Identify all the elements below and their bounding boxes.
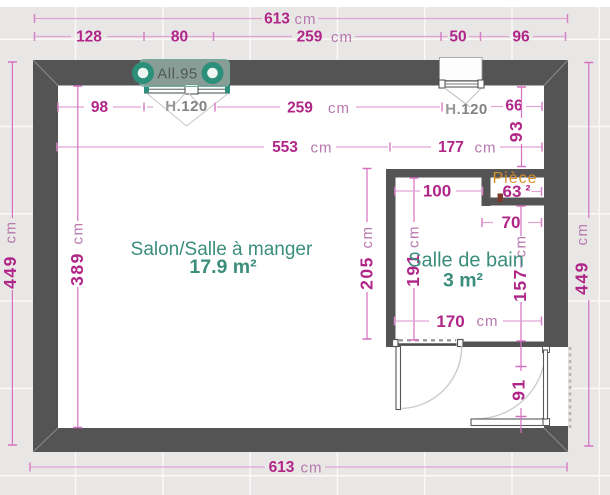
svg-text:cm: cm bbox=[69, 222, 86, 245]
svg-text:cm: cm bbox=[295, 11, 317, 28]
svg-text:Pièce: Pièce bbox=[492, 170, 537, 187]
svg-text:cm: cm bbox=[477, 313, 499, 330]
svg-text:All.95: All.95 bbox=[157, 66, 198, 83]
svg-text:cm: cm bbox=[2, 221, 19, 244]
svg-text:93: 93 bbox=[506, 120, 526, 142]
svg-text:259: 259 bbox=[287, 100, 313, 117]
svg-text:98: 98 bbox=[91, 99, 109, 116]
svg-text:H.120: H.120 bbox=[165, 98, 208, 115]
svg-text:170: 170 bbox=[436, 312, 464, 331]
svg-text:cm: cm bbox=[311, 140, 333, 157]
svg-text:177: 177 bbox=[438, 139, 464, 156]
svg-text:Salle de bain: Salle de bain bbox=[408, 250, 524, 272]
svg-text:449: 449 bbox=[0, 255, 20, 289]
svg-text:cm: cm bbox=[574, 223, 591, 246]
svg-text:70: 70 bbox=[502, 213, 521, 232]
svg-text:613: 613 bbox=[269, 459, 295, 476]
svg-text:100: 100 bbox=[423, 182, 451, 201]
svg-text:cm: cm bbox=[301, 460, 323, 477]
svg-text:cm: cm bbox=[328, 100, 350, 117]
svg-text:3 m²: 3 m² bbox=[443, 270, 484, 292]
svg-text:cm: cm bbox=[359, 226, 376, 249]
svg-text:cm: cm bbox=[406, 225, 423, 248]
svg-text:259: 259 bbox=[297, 29, 323, 46]
svg-text:H.120: H.120 bbox=[445, 101, 488, 118]
svg-text:91: 91 bbox=[509, 378, 529, 400]
svg-text:66: 66 bbox=[505, 98, 523, 115]
svg-text:553: 553 bbox=[272, 139, 298, 156]
svg-text:389: 389 bbox=[67, 252, 87, 286]
svg-text:cm: cm bbox=[475, 140, 497, 157]
svg-text:157: 157 bbox=[510, 268, 530, 302]
svg-text:449: 449 bbox=[572, 261, 592, 295]
svg-text:cm: cm bbox=[331, 29, 353, 46]
svg-text:613: 613 bbox=[264, 11, 290, 28]
svg-text:17.9 m²: 17.9 m² bbox=[189, 256, 257, 278]
svg-text:128: 128 bbox=[76, 29, 102, 46]
svg-text:80: 80 bbox=[171, 29, 188, 46]
svg-text:96: 96 bbox=[512, 29, 530, 46]
svg-text:205: 205 bbox=[357, 256, 377, 290]
svg-text:50: 50 bbox=[449, 29, 466, 46]
